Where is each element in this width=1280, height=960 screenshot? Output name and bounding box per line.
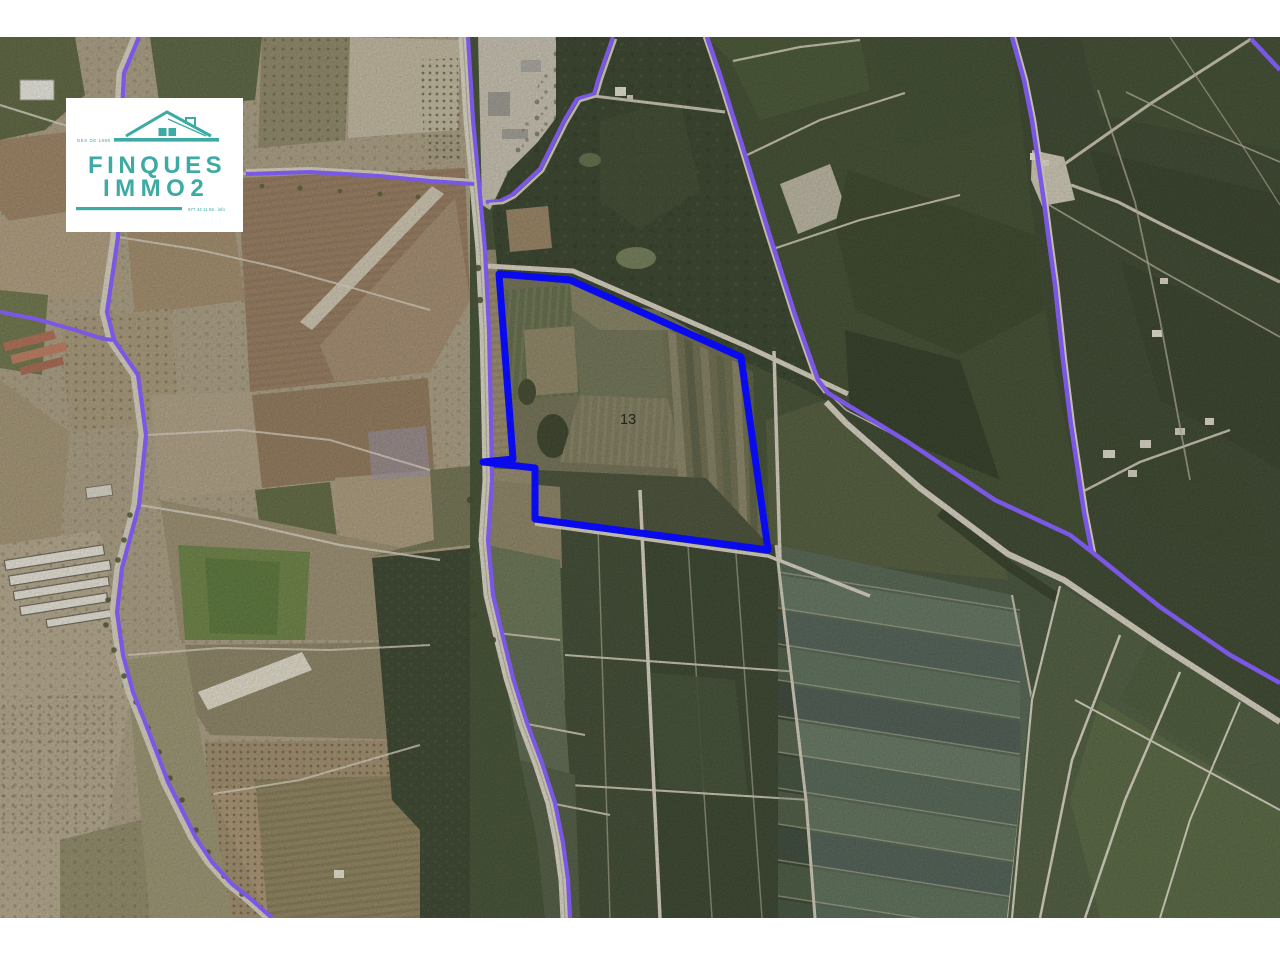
svg-text:IMMO2: IMMO2: [103, 175, 209, 202]
svg-text:977 44 11 55 . info: 977 44 11 55 . info: [188, 207, 225, 212]
svg-text:13: 13: [620, 412, 636, 428]
svg-text:DES DE 1988: DES DE 1988: [77, 138, 111, 143]
